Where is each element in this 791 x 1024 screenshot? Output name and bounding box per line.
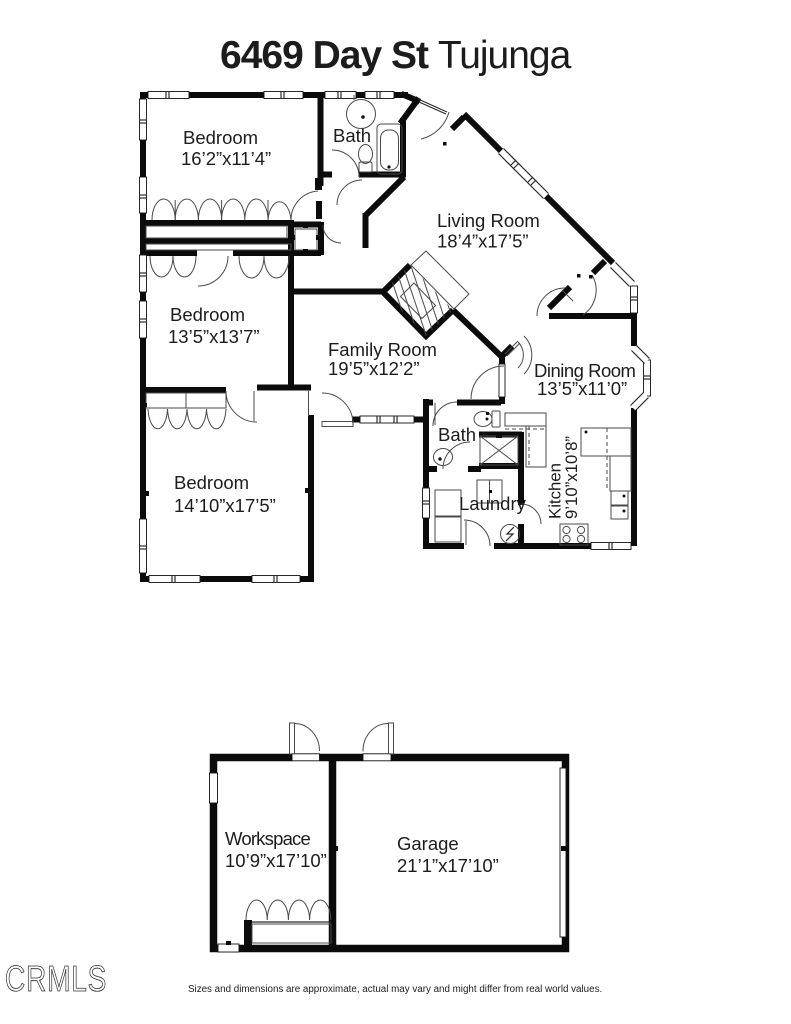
svg-text:Family Room: Family Room [328,339,437,360]
svg-text:CRMLS: CRMLS [5,959,107,999]
svg-text:Bedroom: Bedroom [174,472,249,493]
svg-text:Bath: Bath [333,125,371,146]
svg-text:13’5”x13’7”: 13’5”x13’7” [168,326,260,347]
svg-text:10’9”x17’10”: 10’9”x17’10” [225,850,327,871]
svg-text:18’4”x17’5”: 18’4”x17’5” [437,231,529,252]
svg-text:21’1”x17’10”: 21’1”x17’10” [397,855,499,876]
svg-text:Bath: Bath [438,424,476,445]
svg-text:9’10”x10’8”: 9’10”x10’8” [562,436,581,519]
svg-text:14’10”x17’5”: 14’10”x17’5” [174,495,276,516]
svg-text:Living Room: Living Room [437,210,540,231]
svg-text:19’5”x12’2”: 19’5”x12’2” [328,358,420,379]
svg-text:Laundry: Laundry [459,493,527,514]
svg-text:Garage: Garage [397,833,459,854]
svg-text:Workspace: Workspace [225,828,311,849]
svg-text:13’5”x11’0”: 13’5”x11’0” [537,378,627,399]
svg-text:Bedroom: Bedroom [170,304,245,325]
svg-text:6469 Day St Tujunga: 6469 Day St Tujunga [220,34,572,77]
svg-text:Bedroom: Bedroom [183,127,258,148]
svg-text:16’2”x11’4”: 16’2”x11’4” [181,148,271,169]
svg-text:Sizes and dimensions are appro: Sizes and dimensions are approximate, ac… [188,984,602,995]
